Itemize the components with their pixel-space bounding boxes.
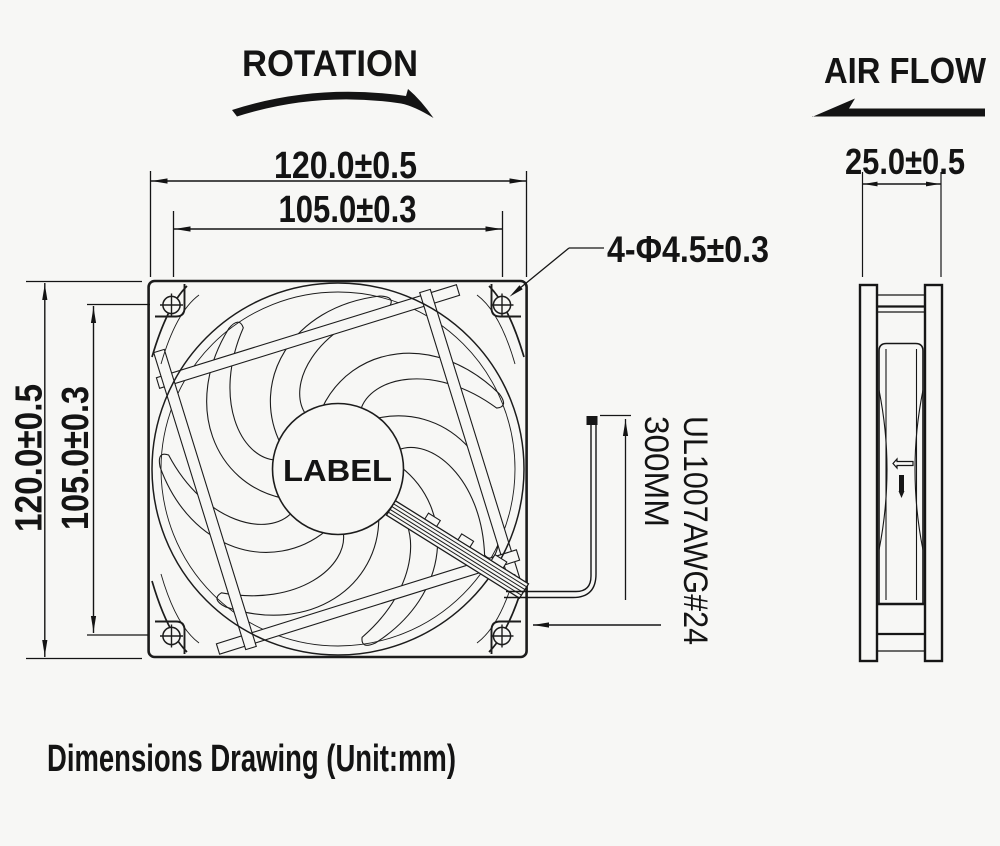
svg-text:120.0±0.5: 120.0±0.5 — [274, 145, 417, 187]
svg-text:25.0±0.5: 25.0±0.5 — [845, 141, 965, 182]
svg-text:AIR FLOW: AIR FLOW — [824, 50, 986, 91]
svg-text:120.0±0.5: 120.0±0.5 — [9, 384, 51, 532]
svg-text:ROTATION: ROTATION — [242, 43, 418, 84]
svg-text:105.0±0.3: 105.0±0.3 — [279, 189, 417, 231]
svg-text:300MM: 300MM — [637, 416, 675, 527]
svg-text:LABEL: LABEL — [283, 453, 392, 488]
svg-text:UL1007AWG#24: UL1007AWG#24 — [676, 416, 714, 645]
svg-text:105.0±0.3: 105.0±0.3 — [55, 386, 97, 530]
svg-text:4-Φ4.5±0.3: 4-Φ4.5±0.3 — [607, 229, 769, 270]
svg-text:Dimensions Drawing (Unit:mm): Dimensions Drawing (Unit:mm) — [47, 738, 456, 780]
